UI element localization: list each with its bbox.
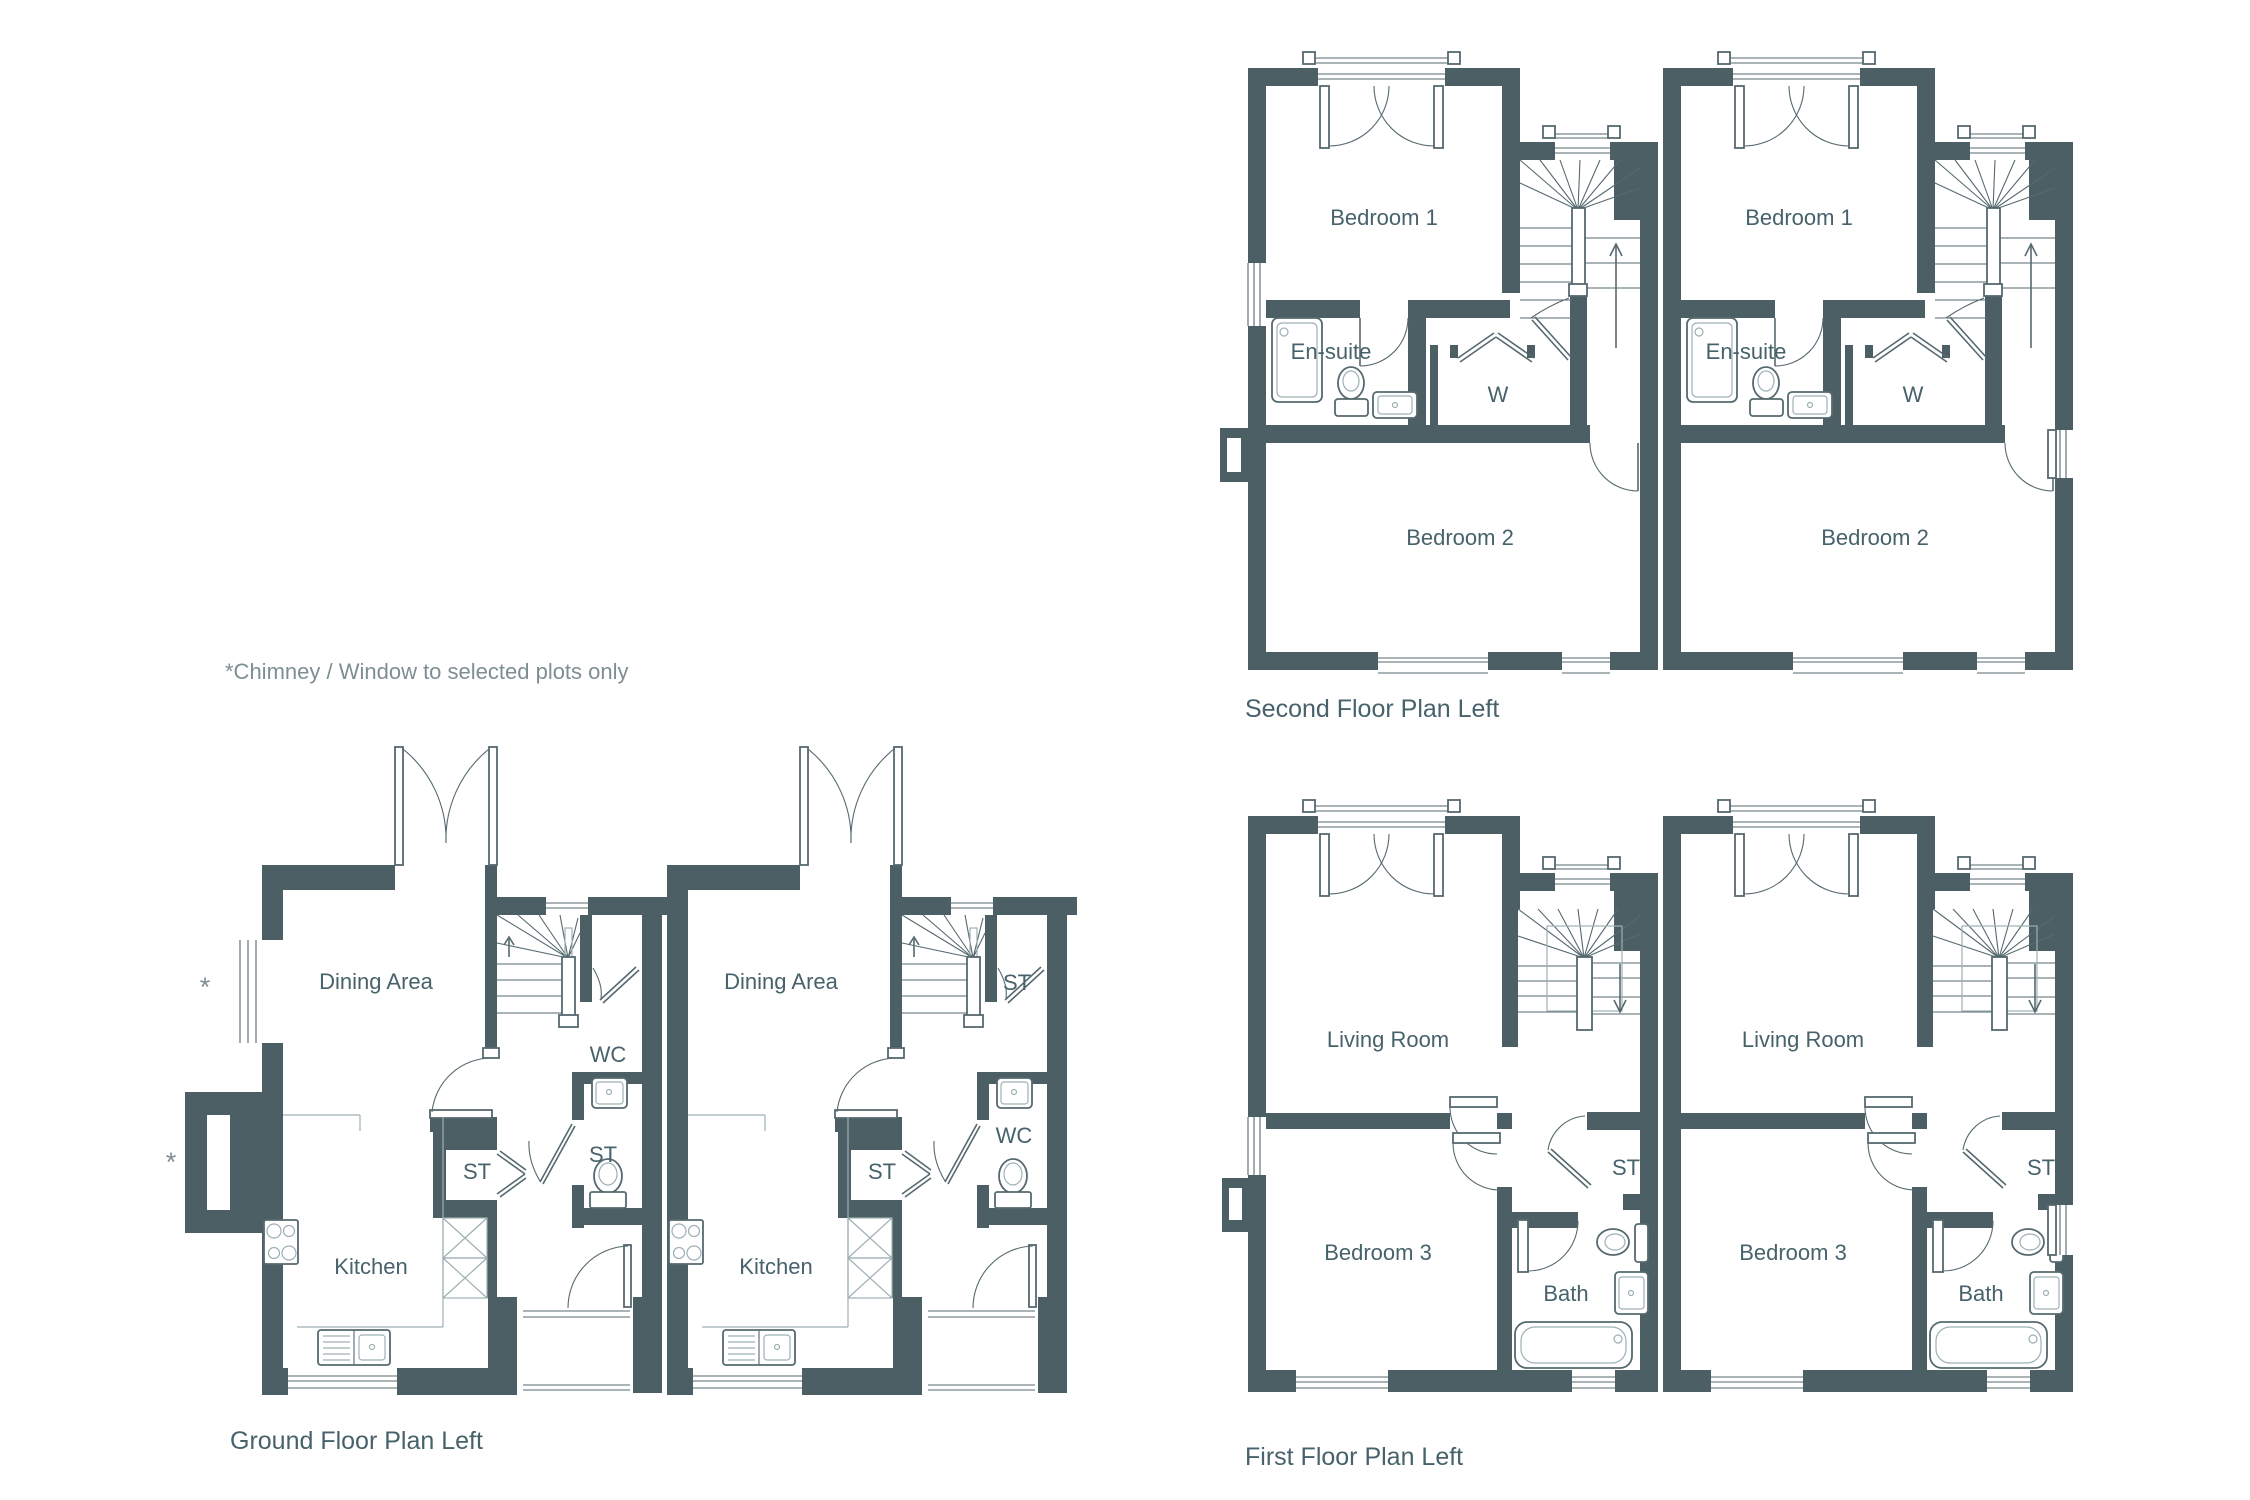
room-label-wardrobe-right: W [1903,382,1924,407]
ground-floor-title: Ground Floor Plan Left [230,1427,483,1455]
floorplan-canvas: *Chimney / Window to selected plots only… [0,0,2250,1500]
ground-floor-unit-left [262,747,672,1395]
asterisk-window: * [200,972,211,1002]
ground-floor-unit-right [667,747,1077,1395]
first-floor-unit-right [1663,800,2073,1392]
room-label-dining-left: Dining Area [319,969,434,994]
floorplan-sheet: *Chimney / Window to selected plots only… [0,0,2250,1500]
room-label-bedroom3-right: Bedroom 3 [1739,1240,1847,1265]
room-label-stairs-closet-left: WC [590,1042,627,1067]
room-label-side-room-right: WC [996,1123,1033,1148]
room-label-ensuite-right: En-suite [1706,339,1787,364]
room-label-kitchen-left: Kitchen [334,1254,407,1279]
room-label-wardrobe-left: W [1488,382,1509,407]
first-floor-title: First Floor Plan Left [1245,1443,1463,1471]
room-label-bedroom2-left: Bedroom 2 [1406,525,1514,550]
asterisk-chimney: * [166,1147,177,1177]
first-floor-unit-left [1248,800,1658,1392]
room-label-ensuite-left: En-suite [1291,339,1372,364]
second-floor-right-gable-window [2048,430,2073,478]
room-label-dining-right: Dining Area [724,969,839,994]
room-label-bedroom1-right: Bedroom 1 [1745,205,1853,230]
room-label-bedroom3-left: Bedroom 3 [1324,1240,1432,1265]
first-floor-plan [1222,800,2073,1392]
room-label-mid-closet-left: ST [463,1159,491,1184]
chimney-note: *Chimney / Window to selected plots only [225,659,629,684]
room-label-storage-right: ST [2027,1155,2055,1180]
room-label-living-right: Living Room [1742,1027,1864,1052]
room-label-mid-closet-right: ST [868,1159,896,1184]
ground-floor-plan [185,747,1077,1395]
room-label-bath-left: Bath [1543,1281,1588,1306]
room-label-living-left: Living Room [1327,1027,1449,1052]
room-label-side-room-left: ST [589,1142,617,1167]
room-label-storage-left: ST [1612,1155,1640,1180]
room-label-kitchen-right: Kitchen [739,1254,812,1279]
first-floor-right-gable-window [2048,1205,2073,1255]
room-label-bedroom2-right: Bedroom 2 [1821,525,1929,550]
room-label-stairs-closet-right: ST [1003,970,1031,995]
second-floor-title: Second Floor Plan Left [1245,695,1499,723]
room-label-bath-right: Bath [1958,1281,2003,1306]
room-label-bedroom1-left: Bedroom 1 [1330,205,1438,230]
